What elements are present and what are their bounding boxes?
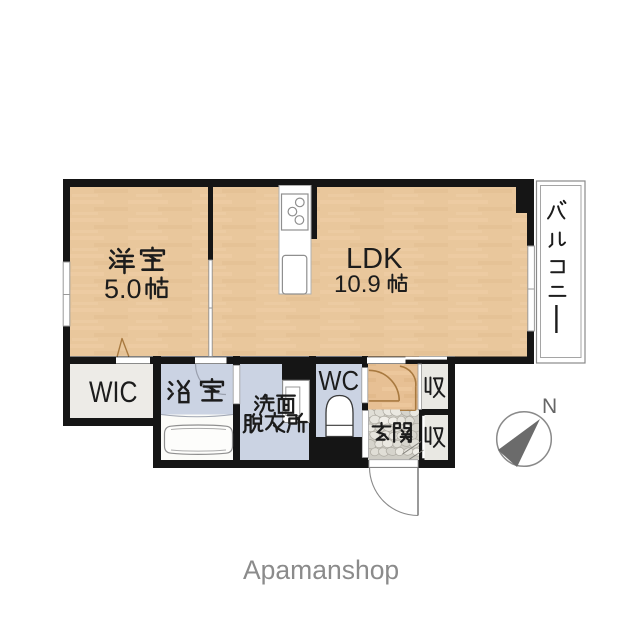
svg-text:WC: WC bbox=[319, 365, 360, 396]
svg-text:WIC: WIC bbox=[89, 376, 138, 409]
svg-text:Apamanshop: Apamanshop bbox=[243, 555, 399, 585]
svg-text:N: N bbox=[542, 395, 557, 418]
svg-text:10.9: 10.9 bbox=[334, 271, 381, 298]
svg-text:5.0: 5.0 bbox=[104, 274, 142, 304]
